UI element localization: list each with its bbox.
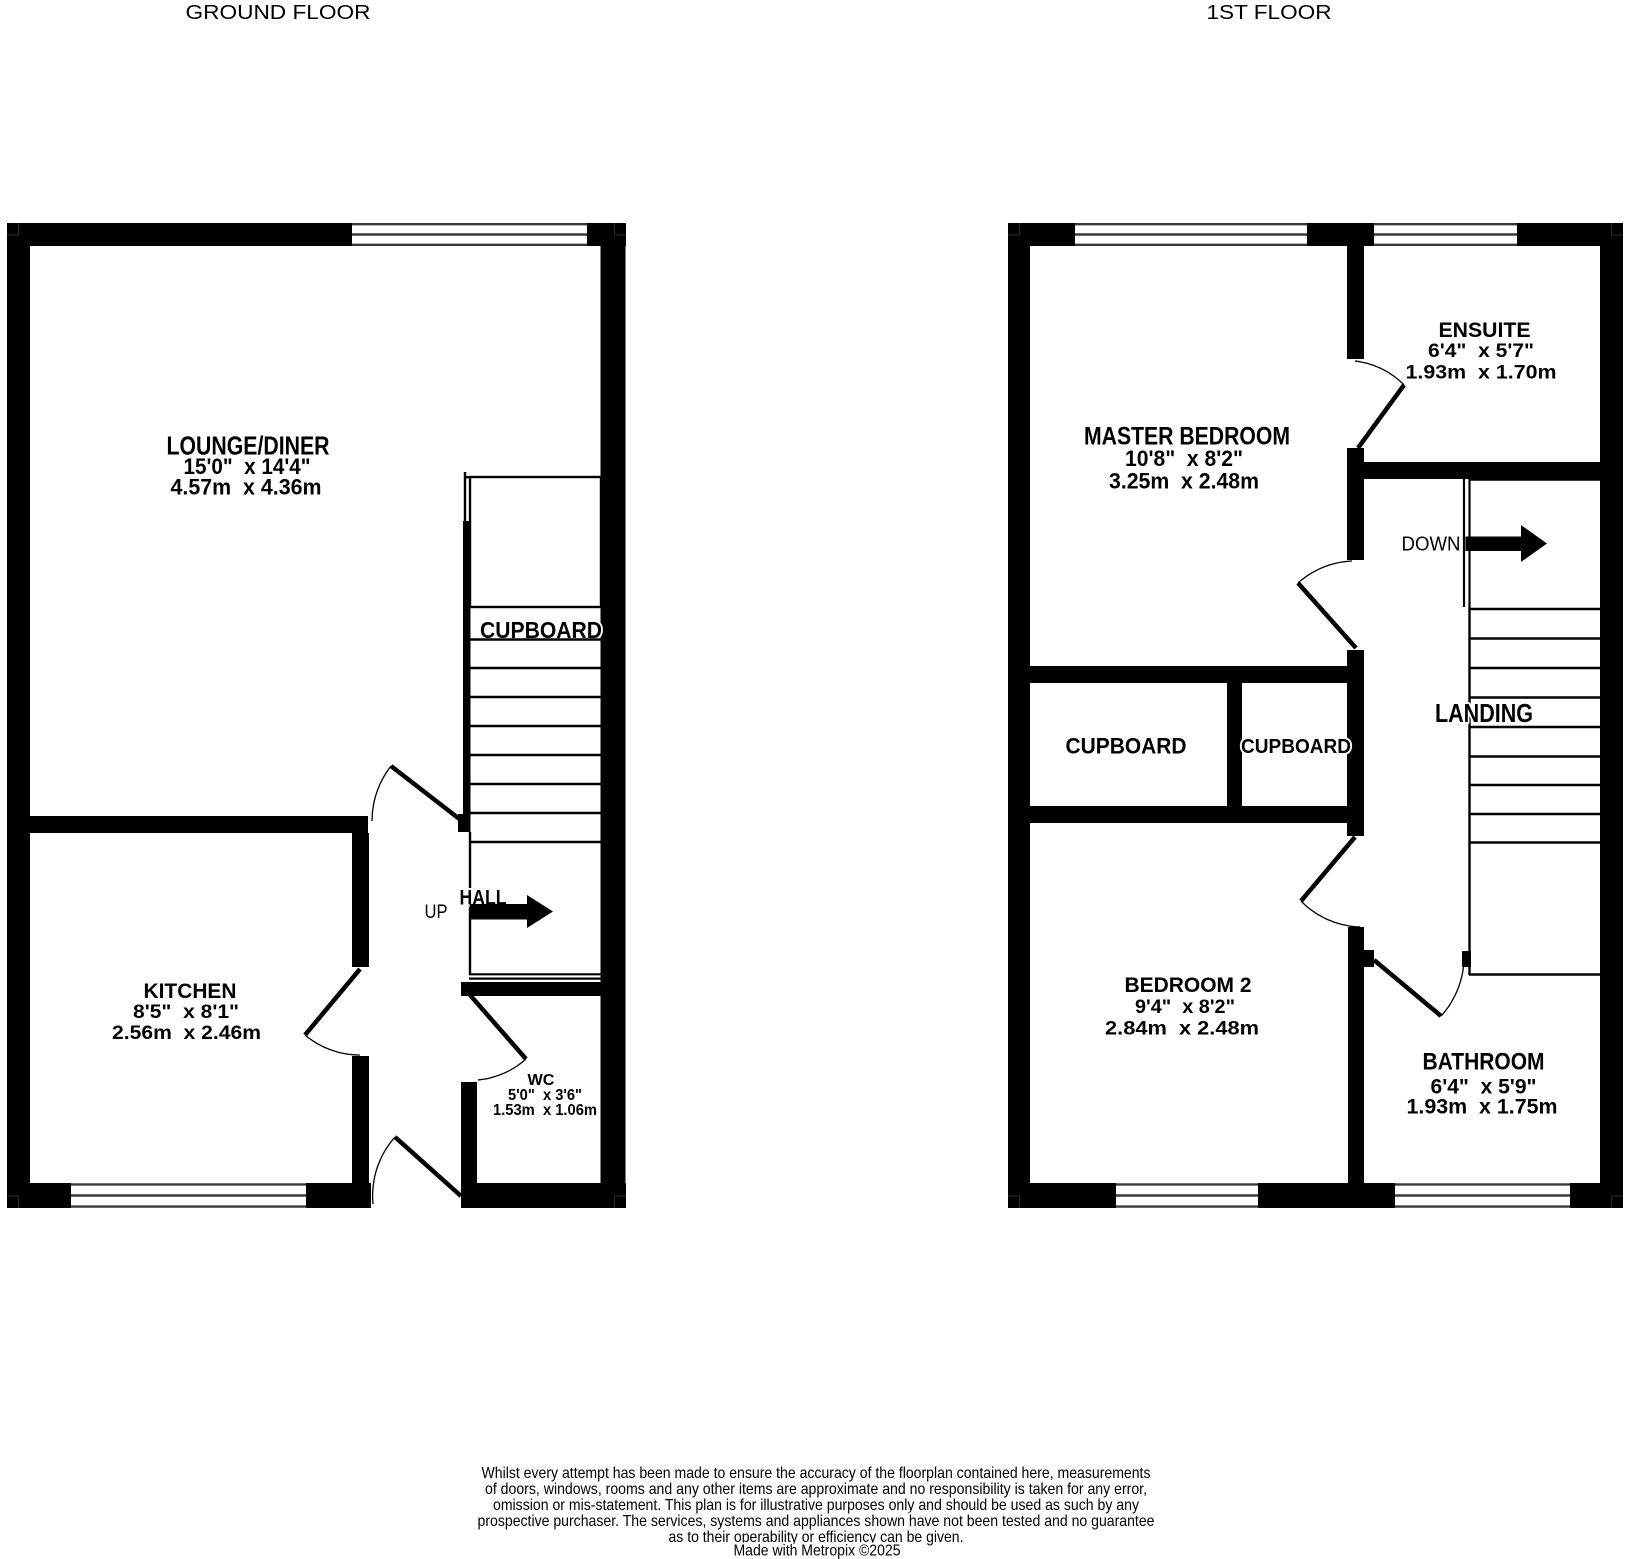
svg-text:UP: UP xyxy=(425,902,448,923)
svg-text:6'4" x 5'7": 6'4" x 5'7" xyxy=(1428,340,1534,362)
svg-text:10'8" x 8'2": 10'8" x 8'2" xyxy=(1125,446,1243,471)
svg-text:BATHROOM: BATHROOM xyxy=(1423,1049,1545,1076)
svg-text:KITCHEN: KITCHEN xyxy=(144,980,237,1003)
svg-text:Made with Metropix ©2025: Made with Metropix ©2025 xyxy=(734,1543,901,1559)
svg-text:1.53m x 1.06m: 1.53m x 1.06m xyxy=(493,1102,597,1119)
svg-text:CUPBOARD: CUPBOARD xyxy=(1241,736,1351,758)
svg-text:2.56m x 2.46m: 2.56m x 2.46m xyxy=(112,1022,261,1044)
svg-text:omission or mis-statement. Thi: omission or mis-statement. This plan is … xyxy=(493,1497,1139,1514)
svg-text:4.57m x 4.36m: 4.57m x 4.36m xyxy=(171,475,322,500)
svg-text:9'4" x 8'2": 9'4" x 8'2" xyxy=(1135,996,1235,1018)
svg-text:1.93m x 1.70m: 1.93m x 1.70m xyxy=(1406,362,1557,384)
svg-text:1ST FLOOR: 1ST FLOOR xyxy=(1207,1,1332,24)
svg-text:1.93m x 1.75m: 1.93m x 1.75m xyxy=(1407,1096,1558,1119)
svg-text:2.84m x 2.48m: 2.84m x 2.48m xyxy=(1105,1018,1259,1040)
svg-text:DOWN: DOWN xyxy=(1402,534,1461,556)
svg-text:CUPBOARD: CUPBOARD xyxy=(1066,734,1187,759)
svg-text:Whilst every attempt has been: Whilst every attempt has been made to en… xyxy=(482,1465,1151,1482)
svg-text:3.25m x 2.48m: 3.25m x 2.48m xyxy=(1109,469,1259,494)
svg-text:ENSUITE: ENSUITE xyxy=(1439,319,1531,342)
svg-text:LANDING: LANDING xyxy=(1435,698,1533,728)
svg-text:prospective purchaser. The ser: prospective purchaser. The services, sys… xyxy=(478,1513,1155,1530)
svg-text:GROUND FLOOR: GROUND FLOOR xyxy=(186,1,371,24)
svg-text:of doors, windows, rooms and a: of doors, windows, rooms and any other i… xyxy=(485,1481,1147,1498)
svg-text:8'5" x 8'1": 8'5" x 8'1" xyxy=(133,1001,239,1023)
svg-text:BEDROOM 2: BEDROOM 2 xyxy=(1125,974,1252,997)
